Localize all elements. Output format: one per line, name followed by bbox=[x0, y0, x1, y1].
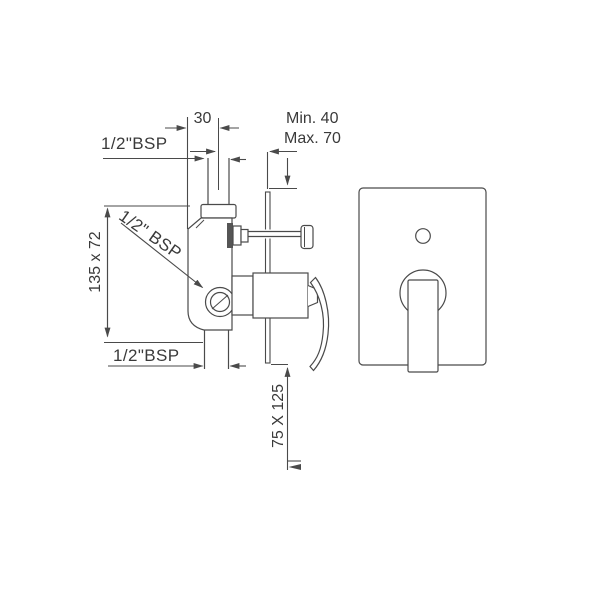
escutcheon-sleeve bbox=[253, 273, 308, 318]
dimension-min-max-depth bbox=[268, 152, 298, 190]
diverter-knob bbox=[301, 226, 313, 249]
diverter-stem-step1 bbox=[233, 226, 241, 245]
thread-top-label: 1/2"BSP bbox=[101, 134, 167, 154]
diverter-flange bbox=[227, 223, 233, 248]
front-view-plate bbox=[359, 188, 486, 372]
rod-mask bbox=[264, 230, 273, 239]
dim-30-label: 30 bbox=[186, 110, 219, 128]
min-depth-label: Min. 40 bbox=[286, 110, 338, 128]
body-size-label: 135 x 72 bbox=[87, 231, 105, 292]
diverter-button-front bbox=[416, 229, 431, 244]
cartridge-body bbox=[232, 276, 253, 315]
side-view-mechanism bbox=[227, 223, 329, 371]
technical-drawing bbox=[0, 0, 600, 600]
lever-handle-front bbox=[408, 280, 438, 372]
plate-size-label: 75 X 125 bbox=[270, 384, 288, 448]
thread-bottom-label: 1/2"BSP bbox=[113, 346, 179, 366]
drawing-canvas: 30 1/2"BSP Min. 40 Max. 70 135 x 72 1/2"… bbox=[0, 0, 600, 600]
max-depth-label: Max. 70 bbox=[284, 130, 341, 148]
valve-collar bbox=[201, 205, 236, 219]
diverter-stem-step2 bbox=[241, 230, 248, 243]
